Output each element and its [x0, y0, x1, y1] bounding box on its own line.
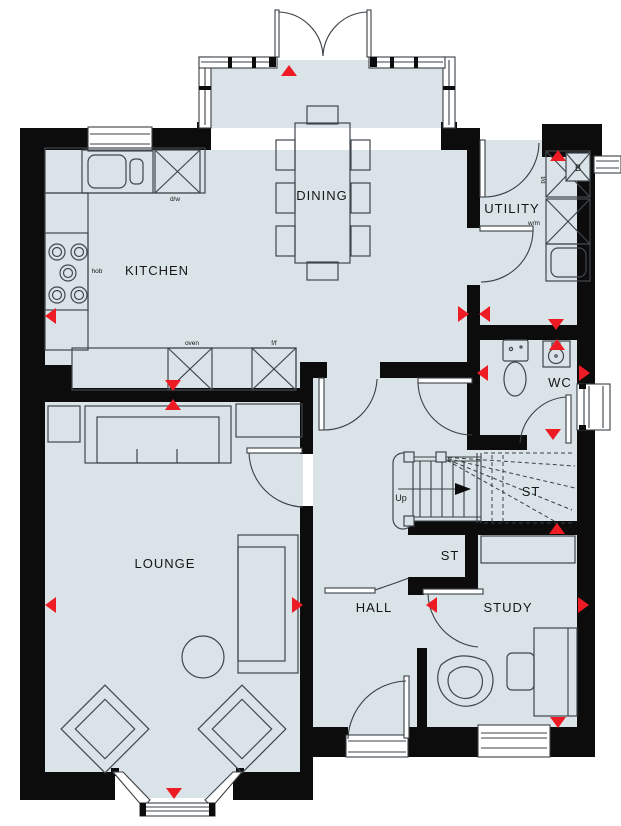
up-label: Up	[395, 493, 407, 503]
dining-bay-window-top-right	[369, 57, 445, 68]
wc-window	[577, 384, 610, 430]
utility-label: UTILITY	[484, 201, 539, 216]
utility-floor	[480, 140, 580, 330]
utility-west-wall-lower	[467, 285, 480, 327]
hob-label: hob	[92, 268, 103, 275]
french-doors	[269, 10, 377, 67]
store-stairs-label: ST	[522, 484, 541, 499]
lounge-floor	[45, 390, 303, 772]
lounge-door-jamb	[300, 506, 313, 522]
kitchen-window	[88, 127, 152, 151]
wall-east-lower	[577, 535, 595, 757]
study-window	[478, 725, 550, 757]
winder-newel-post	[436, 452, 446, 462]
floorplan-drawing: KITCHEN DINING UTILITY WC LOUNGE HALL ST…	[0, 0, 621, 826]
oven-label: oven	[185, 340, 199, 347]
newel-post	[404, 452, 414, 462]
hall-top-wall	[380, 362, 475, 378]
hall-south-wall-left	[313, 727, 348, 757]
wall-north-left	[20, 128, 90, 150]
tumble-dryer-label: t/d	[539, 176, 546, 184]
kitchen-wall-jut	[45, 365, 72, 390]
dining-bay-window-top-left	[199, 57, 277, 68]
utility-west-wall-upper	[467, 150, 480, 228]
wc-south-wall	[467, 435, 527, 450]
dining-label: DINING	[296, 188, 348, 203]
lounge-south-wall-right	[233, 772, 313, 800]
store-east-wall	[465, 535, 478, 583]
wall-east-mid	[577, 425, 595, 535]
study-label: STUDY	[483, 600, 532, 615]
wall-west	[20, 128, 45, 800]
lounge-south-wall-left	[20, 772, 115, 800]
wc-west-wall	[467, 340, 480, 438]
store-hall-label: ST	[441, 548, 460, 563]
kitchen-label: KITCHEN	[125, 263, 189, 278]
utility-wc-divider	[467, 325, 595, 340]
hall-top-jamb	[313, 362, 327, 378]
hall-study-wall	[417, 648, 427, 727]
lounge-hall-wall-lower	[300, 522, 313, 774]
floorplan-canvas: KITCHEN DINING UTILITY WC LOUNGE HALL ST…	[0, 0, 621, 826]
dining-bay-floor	[210, 60, 445, 128]
hall-label: HALL	[356, 600, 393, 615]
kitchen-dining-floor	[45, 150, 475, 390]
wall-north-mid	[152, 128, 204, 150]
fridge-freezer-label: f/f	[271, 340, 277, 347]
wc-label: WC	[548, 375, 572, 390]
newel-post	[404, 516, 414, 526]
boiler-label: B	[575, 163, 581, 173]
lounge-label: LOUNGE	[135, 556, 196, 571]
study-south-wall	[550, 727, 595, 757]
boiler-flue-vent	[594, 156, 621, 173]
store-door-jamb	[408, 577, 424, 595]
dishwasher-label: d/w	[170, 196, 180, 203]
wall-north-right	[441, 128, 480, 150]
washing-machine-label: w/m	[527, 220, 540, 227]
hall-south-wall-right	[408, 727, 478, 757]
